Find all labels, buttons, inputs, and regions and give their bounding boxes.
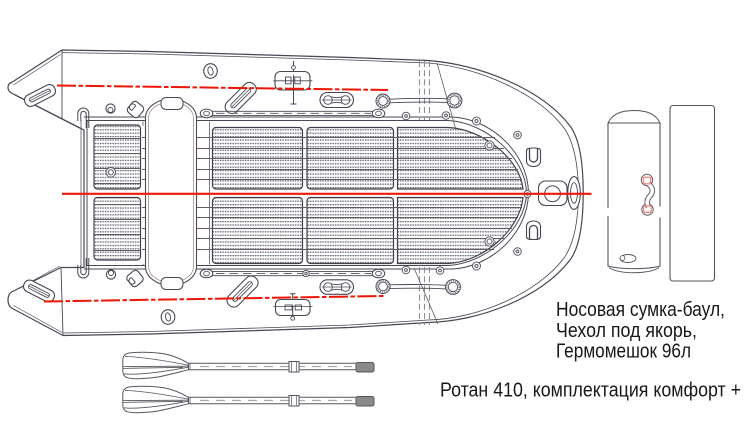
svg-text:Носовая сумка-баул,: Носовая сумка-баул, — [556, 298, 725, 321]
svg-text:Гермомешок 96л: Гермомешок 96л — [556, 340, 691, 363]
svg-text:Чехол под якорь,: Чехол под якорь, — [556, 319, 697, 342]
svg-text:Ротан 410, комплектация комфор: Ротан 410, комплектация комфорт + — [440, 378, 741, 401]
